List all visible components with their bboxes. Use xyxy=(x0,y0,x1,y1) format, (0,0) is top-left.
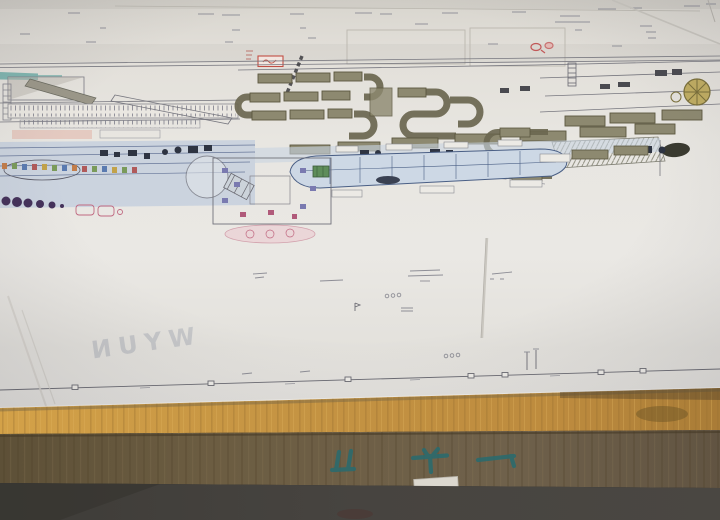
lighting-vignette xyxy=(0,0,720,409)
photo-of-blueprint: WYUN xyxy=(0,0,720,520)
wooden-crate xyxy=(0,388,720,520)
scene-canvas: WYUN xyxy=(0,0,720,520)
